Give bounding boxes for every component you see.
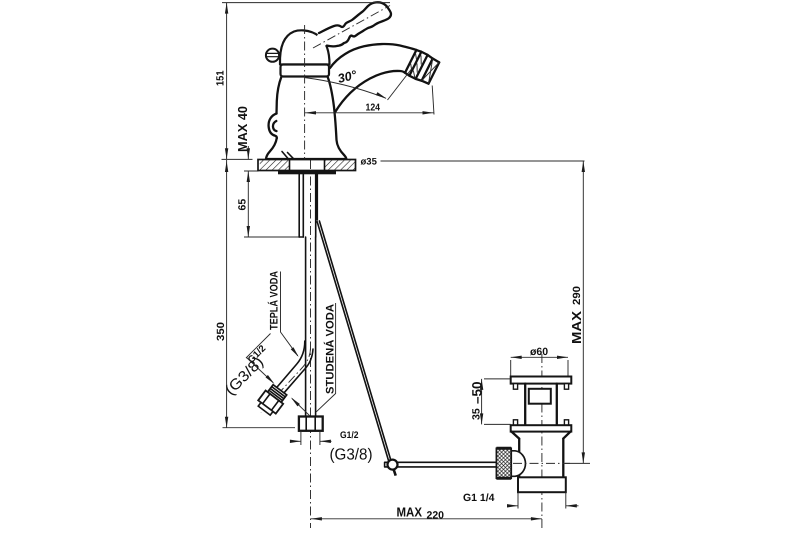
svg-text:220: 220: [427, 510, 445, 522]
svg-text:MAX: MAX: [569, 311, 584, 344]
svg-text:G1/2: G1/2: [340, 430, 359, 441]
svg-text:TEPLÁ VODA: TEPLÁ VODA: [268, 271, 281, 330]
svg-text:STUDENÁ VODA: STUDENÁ VODA: [324, 304, 337, 394]
svg-text:–50: –50: [470, 381, 485, 404]
svg-text:ø35: ø35: [361, 157, 378, 168]
svg-text:290: 290: [571, 286, 583, 305]
svg-text:MAX 40: MAX 40: [235, 106, 250, 152]
svg-text:G1 1/4: G1 1/4: [463, 492, 495, 504]
svg-text:350: 350: [215, 322, 227, 341]
svg-text:(G3/8): (G3/8): [330, 447, 373, 464]
svg-text:65: 65: [236, 199, 248, 211]
svg-text:35: 35: [471, 408, 483, 420]
svg-text:124: 124: [366, 103, 381, 114]
svg-text:ø60: ø60: [530, 346, 548, 358]
svg-text:151: 151: [215, 70, 227, 86]
svg-text:MAX: MAX: [397, 505, 423, 520]
